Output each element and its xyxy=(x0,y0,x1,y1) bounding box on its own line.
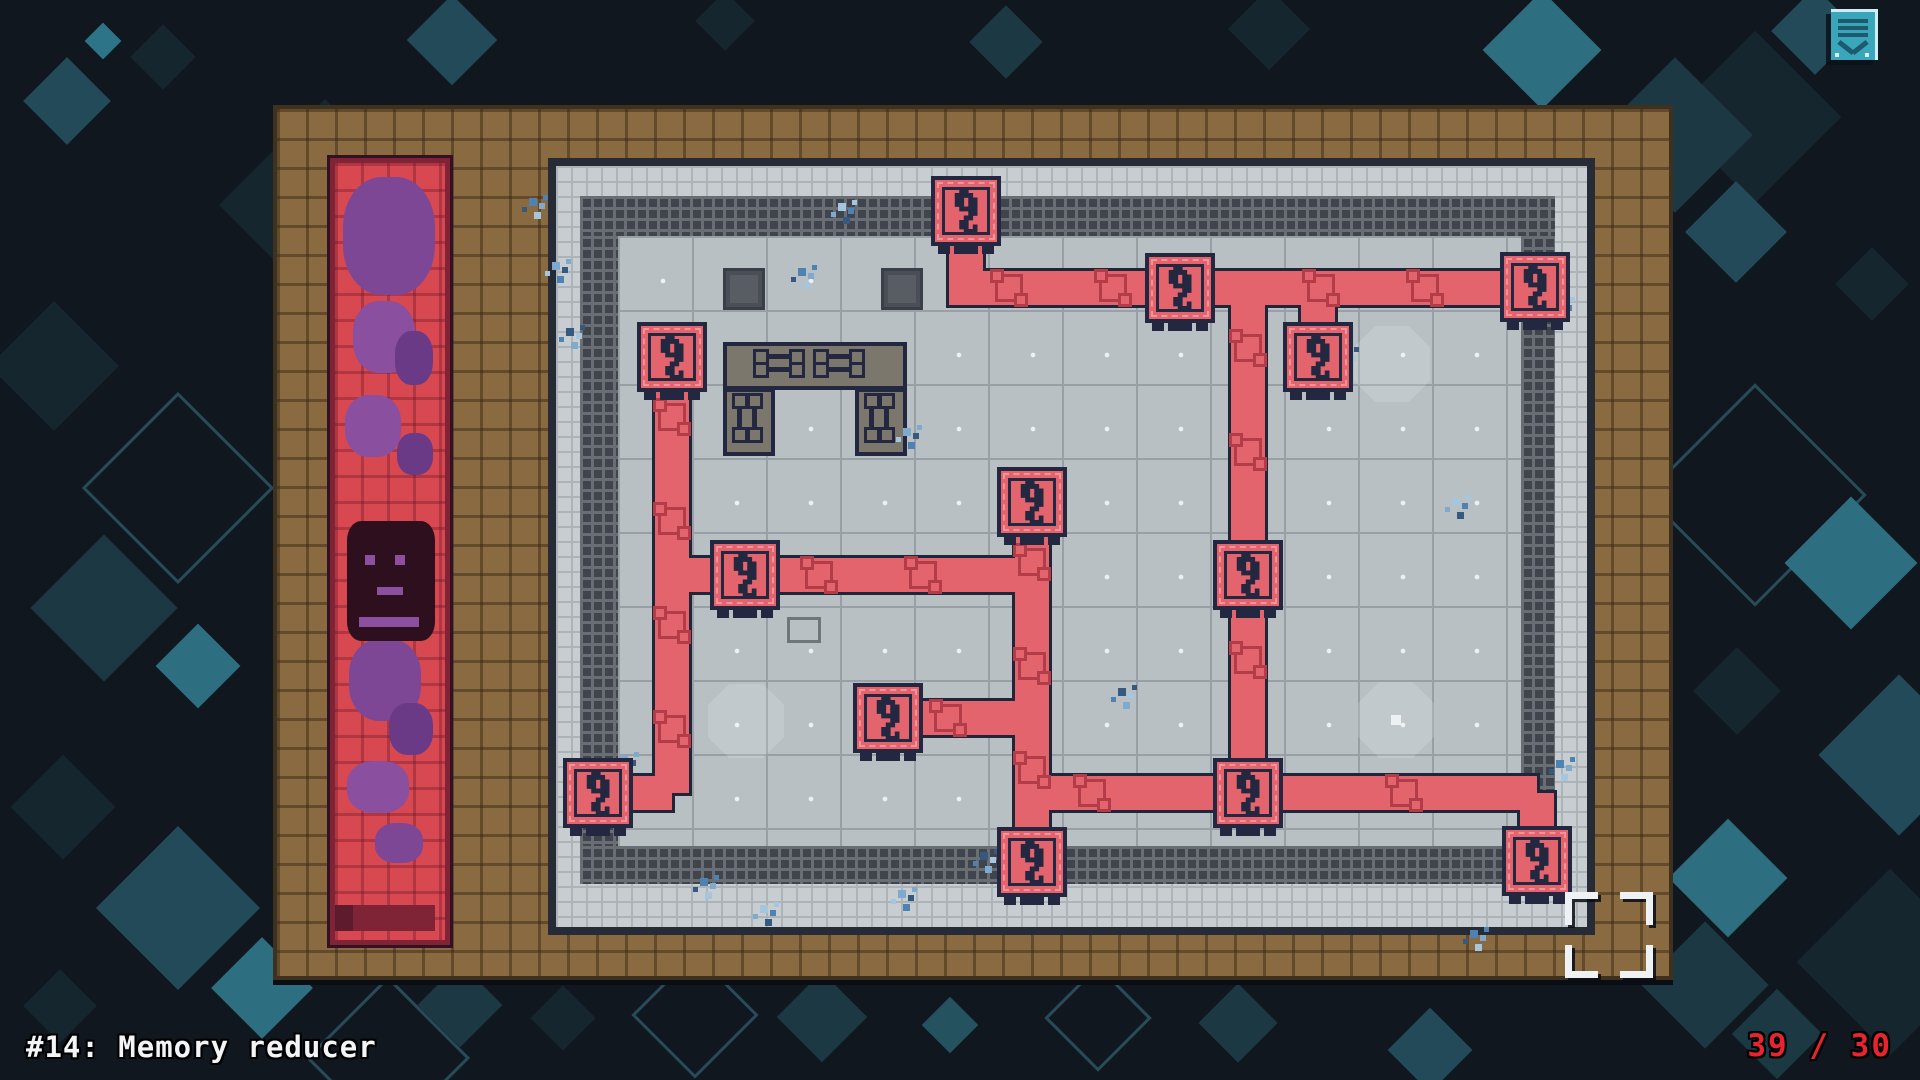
background-diamond xyxy=(1818,674,1920,835)
node[interactable] xyxy=(853,683,923,753)
spiral-9-icon xyxy=(734,553,757,598)
moss-speckle xyxy=(566,328,574,336)
spiral-9-icon xyxy=(877,696,900,741)
moss-speckle xyxy=(714,875,719,880)
skull-detail xyxy=(365,555,375,565)
node[interactable] xyxy=(563,758,633,828)
checker-band-left xyxy=(580,236,618,846)
lava-growth xyxy=(395,331,433,385)
moss-speckle xyxy=(891,899,896,904)
moss-speckle xyxy=(990,857,996,863)
lava-growth xyxy=(375,823,423,863)
path-motif xyxy=(1234,646,1262,674)
path-motif xyxy=(805,561,833,589)
background-diamond xyxy=(969,5,1043,79)
notes-line-icon xyxy=(1838,19,1868,23)
spiral-9-icon xyxy=(1524,265,1547,310)
connector-bar xyxy=(758,367,800,372)
moss-speckle xyxy=(1570,757,1575,762)
background-diamond xyxy=(1044,964,1151,1071)
moss-speckle xyxy=(529,198,537,206)
notes-line-icon xyxy=(1838,26,1868,30)
moss-speckle xyxy=(1463,939,1468,944)
path-motif xyxy=(658,611,686,639)
moss-speckle xyxy=(760,905,768,913)
corner-dot xyxy=(1835,53,1839,57)
moss-speckle xyxy=(576,333,582,339)
moss-speckle xyxy=(693,887,698,892)
background-diamond xyxy=(695,0,754,51)
cursor-corner xyxy=(1565,945,1598,978)
path-motif xyxy=(1018,756,1046,784)
spiral-9-icon xyxy=(1021,840,1044,885)
moss-speckle xyxy=(543,195,548,200)
moss-speckle xyxy=(552,262,560,270)
path-motif xyxy=(1018,548,1046,576)
moss-speckle xyxy=(791,277,796,282)
moss-speckle xyxy=(1118,688,1126,696)
background-diamond xyxy=(1388,1008,1473,1080)
move-counter: 39 / 30 xyxy=(1747,1028,1892,1064)
moss-speckle xyxy=(1466,495,1471,500)
moss-speckle xyxy=(985,866,992,873)
background-diamond xyxy=(156,624,241,709)
path-motif xyxy=(934,704,962,732)
moss-speckle xyxy=(770,910,776,916)
spiral-9-icon xyxy=(1169,266,1192,311)
lava-growth xyxy=(389,703,433,755)
moss-speckle xyxy=(710,883,716,889)
selection-cursor xyxy=(1565,892,1653,978)
moss-speckle xyxy=(808,273,814,279)
octagon-decal xyxy=(708,684,784,758)
spiral-9-icon xyxy=(1237,771,1260,816)
moss-speckle xyxy=(1111,697,1116,702)
connector-bar xyxy=(818,354,860,359)
moss-speckle xyxy=(1561,774,1568,781)
skull-detail xyxy=(377,587,403,595)
game-screen: #14: Memory reducer 39 / 30 xyxy=(0,0,1920,1080)
notes-line-icon xyxy=(1838,33,1868,37)
moss-speckle xyxy=(559,337,564,342)
cursor-corner xyxy=(1565,892,1598,925)
moss-speckle xyxy=(705,892,712,899)
skull-detail xyxy=(359,617,419,627)
lava-growth xyxy=(397,433,433,475)
moss-speckle xyxy=(1462,503,1468,509)
node[interactable] xyxy=(1283,322,1353,392)
connector-bar xyxy=(884,398,889,438)
path-motif xyxy=(1234,438,1262,466)
skull-creature xyxy=(347,521,435,641)
node[interactable] xyxy=(931,176,1001,246)
moss-speckle xyxy=(545,271,550,276)
moss-speckle xyxy=(903,904,910,911)
moss-speckle xyxy=(1480,935,1486,941)
lava-growth xyxy=(343,177,435,295)
background-diamond xyxy=(1693,647,1781,735)
background-diamond xyxy=(130,24,195,89)
path-motif xyxy=(995,274,1023,302)
connector-bar xyxy=(818,367,860,372)
moss-speckle xyxy=(1484,927,1489,932)
node[interactable] xyxy=(1502,826,1572,896)
background-diamond xyxy=(1685,181,1787,283)
cursor-corner xyxy=(1620,945,1653,978)
path-motif xyxy=(1307,274,1335,302)
moss-speckle xyxy=(908,895,914,901)
node[interactable] xyxy=(710,540,780,610)
moss-speckle xyxy=(848,208,854,214)
moss-speckle xyxy=(1566,765,1572,771)
node[interactable] xyxy=(997,827,1067,897)
connector-bar xyxy=(737,398,742,438)
lava-strip xyxy=(330,158,450,945)
spiral-9-icon xyxy=(955,189,978,234)
checker-band-bottom xyxy=(580,846,1555,884)
spiral-9-icon xyxy=(1526,839,1549,884)
path-motif xyxy=(909,561,937,589)
path-motif xyxy=(1390,779,1418,807)
moss-speckle xyxy=(912,887,917,892)
connector-bar xyxy=(752,398,757,438)
cursor-corner xyxy=(1620,892,1653,925)
moss-speckle xyxy=(1470,930,1478,938)
skull-detail xyxy=(395,555,405,565)
moss-speckle xyxy=(1132,685,1137,690)
background-diamond xyxy=(0,301,119,431)
moss-speckle xyxy=(973,861,978,866)
moss-speckle xyxy=(774,902,779,907)
connector-bar xyxy=(869,398,874,438)
moss-speckle xyxy=(980,852,988,860)
level-label: #14: Memory reducer xyxy=(26,1030,377,1064)
moss-speckle xyxy=(765,919,772,926)
moss-speckle xyxy=(700,878,708,886)
path-motif xyxy=(1411,274,1439,302)
moss-speckle xyxy=(1549,769,1554,774)
moss-speckle xyxy=(1128,693,1134,699)
node[interactable] xyxy=(1213,758,1283,828)
moss-speckle xyxy=(838,203,846,211)
connector-bar xyxy=(758,354,800,359)
spiral-9-icon xyxy=(587,771,610,816)
lava-growth xyxy=(345,395,401,457)
moss-speckle xyxy=(1123,702,1130,709)
menu-button[interactable] xyxy=(1831,9,1878,60)
moss-speckle xyxy=(1556,760,1564,768)
moss-speckle xyxy=(557,276,564,283)
node[interactable] xyxy=(1213,540,1283,610)
moss-speckle xyxy=(903,428,911,436)
spiral-9-icon xyxy=(661,335,684,380)
background-diamond xyxy=(922,997,979,1054)
octagon-center-dot xyxy=(1391,715,1401,725)
moss-speckle xyxy=(566,259,571,264)
moss-speckle xyxy=(831,212,836,217)
moss-speckle xyxy=(798,268,806,276)
floor-plaque xyxy=(787,617,821,643)
moss-speckle xyxy=(917,425,922,430)
path-motif xyxy=(658,715,686,743)
node[interactable] xyxy=(637,322,707,392)
background-diamond xyxy=(530,985,595,1050)
spiral-9-icon xyxy=(1021,480,1044,525)
background-diamond xyxy=(23,57,111,145)
octagon-decal xyxy=(1358,682,1434,758)
path-motif xyxy=(1078,779,1106,807)
moss-speckle xyxy=(634,752,639,757)
moss-speckle xyxy=(580,325,585,330)
moss-speckle xyxy=(562,267,568,273)
moss-speckle xyxy=(913,433,919,439)
moss-speckle xyxy=(803,282,810,289)
corner-dot xyxy=(1865,53,1869,57)
spiral-9-icon xyxy=(1237,553,1260,598)
moss-speckle xyxy=(534,212,541,219)
background-diamond xyxy=(1228,0,1310,70)
moss-speckle xyxy=(812,265,817,270)
vent-tile xyxy=(881,268,923,310)
moss-speckle xyxy=(898,890,906,898)
background-diamond xyxy=(11,755,116,860)
moss-speckle xyxy=(1570,297,1575,302)
moss-speckle xyxy=(1452,498,1460,506)
moss-speckle xyxy=(571,342,578,349)
node[interactable] xyxy=(997,467,1067,537)
moss-speckle xyxy=(908,442,915,449)
background-diamond xyxy=(85,23,122,60)
background-diamond xyxy=(1669,819,1788,938)
lava-foot xyxy=(335,905,435,931)
node[interactable] xyxy=(1145,253,1215,323)
background-diamond xyxy=(1198,983,1277,1062)
path-motif xyxy=(1018,652,1046,680)
checker-band-top xyxy=(580,196,1555,236)
path-motif xyxy=(1234,334,1262,362)
background-diamond xyxy=(777,972,868,1063)
path-motif xyxy=(658,403,686,431)
moss-speckle xyxy=(843,217,850,224)
moss-speckle xyxy=(1457,512,1464,519)
moss-speckle xyxy=(753,914,758,919)
spiral-9-icon xyxy=(1307,335,1330,380)
moss-speckle xyxy=(1354,347,1359,352)
moss-speckle xyxy=(522,207,527,212)
path-motif xyxy=(1099,274,1127,302)
moss-speckle xyxy=(896,437,901,442)
octagon-decal xyxy=(1354,326,1430,402)
lava-growth xyxy=(347,761,409,813)
background-diamond xyxy=(1483,0,1602,109)
moss-speckle xyxy=(852,200,857,205)
moss-speckle xyxy=(1475,944,1482,951)
vent-tile xyxy=(723,268,765,310)
moss-speckle xyxy=(539,203,545,209)
moss-speckle xyxy=(1445,507,1450,512)
path-motif xyxy=(658,507,686,535)
background-diamond xyxy=(1835,247,1909,321)
node[interactable] xyxy=(1500,252,1570,322)
background-diamond xyxy=(407,0,498,85)
